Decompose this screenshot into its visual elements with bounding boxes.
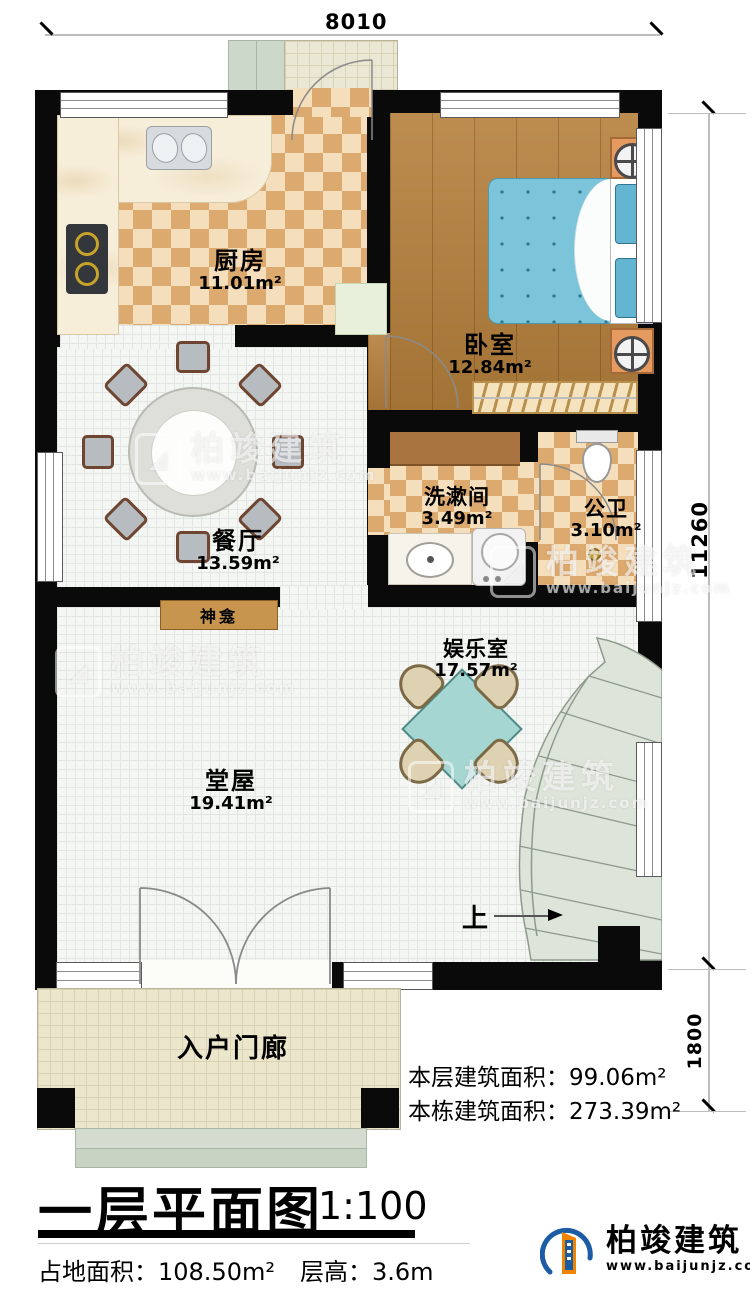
washing-machine-icon [472, 528, 526, 586]
room-label-dining: 餐厅 13.59m² [178, 528, 298, 574]
floor-height-value: 3.6m [372, 1258, 434, 1286]
floor-area-stat: 本层建筑面积：99.06m² [408, 1058, 666, 1092]
floor-area-label: 本层建筑面积： [408, 1065, 569, 1091]
faucet-icon [427, 556, 434, 563]
land-area-stat: 占地面积：108.50m² [38, 1252, 275, 1287]
porch-pillar [361, 1088, 399, 1128]
round-dining-table [128, 387, 258, 517]
bathroom-name: 公卫 [546, 498, 666, 521]
room-label-hall: 堂屋 19.41m² [171, 768, 291, 814]
porch-step [75, 1128, 367, 1150]
opening-entry-door [138, 960, 332, 990]
kitchen-area: 11.01m² [180, 274, 300, 294]
dimension-ext [668, 969, 746, 970]
window [440, 92, 620, 118]
entertainment-area: 17.57m² [416, 661, 536, 681]
stair-wall-notch [598, 926, 640, 964]
dining-table-top [151, 410, 237, 496]
sink-basin [149, 130, 182, 166]
window [343, 962, 433, 990]
room-label-kitchen: 厨房 11.01m² [180, 248, 300, 294]
title-underline-thin [38, 1243, 470, 1244]
land-area-label: 占地面积： [38, 1258, 158, 1286]
up-arrow-icon [548, 909, 563, 921]
basin-counter [388, 533, 472, 585]
dining-area: 13.59m² [178, 554, 298, 574]
room-label-porch: 入户门廊 [148, 1035, 318, 1064]
dining-name: 餐厅 [178, 528, 298, 554]
washing-machine-knob [483, 576, 489, 582]
stove-burner [75, 262, 99, 286]
room-label-washroom: 洗漱间 3.49m² [397, 486, 517, 529]
washroom-name: 洗漱间 [397, 486, 517, 509]
bedroom-name: 卧室 [430, 332, 550, 358]
brand-logo-icon [540, 1222, 598, 1282]
window [60, 92, 228, 118]
window [636, 128, 662, 323]
hall-name: 堂屋 [171, 768, 291, 794]
shrine: 神龛 [160, 600, 278, 630]
sink-icon [146, 126, 212, 170]
dimension-porch-value: 1800 [684, 1001, 706, 1081]
washroom-counter [390, 432, 520, 466]
floor-height-label: 层高： [300, 1258, 372, 1286]
dimension-side-value: 11260 [688, 500, 712, 580]
dimension-line-porch [708, 970, 710, 1112]
shrine-label: 神龛 [200, 603, 238, 627]
brand-logo: 柏竣建筑 www.baijunjz.com [540, 1222, 750, 1282]
brand-name: 柏竣建筑 [606, 1226, 750, 1257]
washing-machine-drum [481, 533, 519, 571]
porch-pillar [37, 1088, 75, 1128]
stove-icon [66, 224, 108, 294]
land-area-value: 108.50m² [158, 1258, 275, 1286]
dimension-line-top [45, 34, 660, 36]
dining-chair [272, 435, 304, 469]
fridge-icon [335, 283, 387, 335]
bed [488, 176, 653, 324]
porch-step [75, 1148, 367, 1168]
up-arrow-line [494, 915, 556, 917]
dining-chair [176, 341, 210, 373]
dimension-top-value: 8010 [325, 10, 387, 34]
window [636, 742, 662, 877]
nightstand-lamp-icon [614, 336, 650, 372]
window [56, 962, 142, 990]
building-area-stat: 本栋建筑面积：273.39m² [408, 1092, 681, 1126]
opening-bedroom-door [368, 333, 390, 410]
porch-name: 入户门廊 [148, 1035, 318, 1064]
room-label-bathroom: 公卫 3.10m² [546, 498, 666, 541]
dining-chair [82, 435, 114, 469]
opening-washroom [368, 468, 390, 535]
floor-plan: 8010 11260 1800 [0, 0, 750, 1290]
dimension-ext [668, 113, 746, 114]
kitchen-name: 厨房 [180, 248, 300, 274]
building-area-value: 273.39m² [569, 1099, 681, 1125]
bedroom-area: 12.84m² [430, 358, 550, 378]
opening-dining-hall [280, 585, 368, 609]
toilet-tank [576, 430, 618, 443]
washroom-area: 3.49m² [397, 509, 517, 529]
entertainment-name: 娱乐室 [416, 638, 536, 661]
opening-kitchen-backdoor [293, 88, 372, 117]
hall-area: 19.41m² [171, 794, 291, 814]
title-underline [38, 1230, 415, 1238]
floor-area-value: 99.06m² [569, 1065, 666, 1091]
sink-basin [178, 130, 211, 166]
drawing-scale: 1:100 [318, 1184, 428, 1228]
floor-drain-icon [588, 548, 601, 561]
room-label-entertainment: 娱乐室 17.57m² [416, 638, 536, 681]
stove-burner [75, 232, 99, 256]
bathroom-area: 3.10m² [546, 521, 666, 541]
wardrobe [472, 381, 638, 414]
stairs-up-label: 上 [462, 898, 488, 935]
brand-url: www.baijunjz.com [606, 1257, 750, 1278]
room-label-bedroom: 卧室 12.84m² [430, 332, 550, 378]
nightstand-icon [610, 328, 654, 374]
washing-machine-knob [495, 576, 501, 582]
floor-height-stat: 层高：3.6m [300, 1252, 434, 1287]
building-area-label: 本栋建筑面积： [408, 1099, 569, 1125]
window [37, 452, 63, 582]
